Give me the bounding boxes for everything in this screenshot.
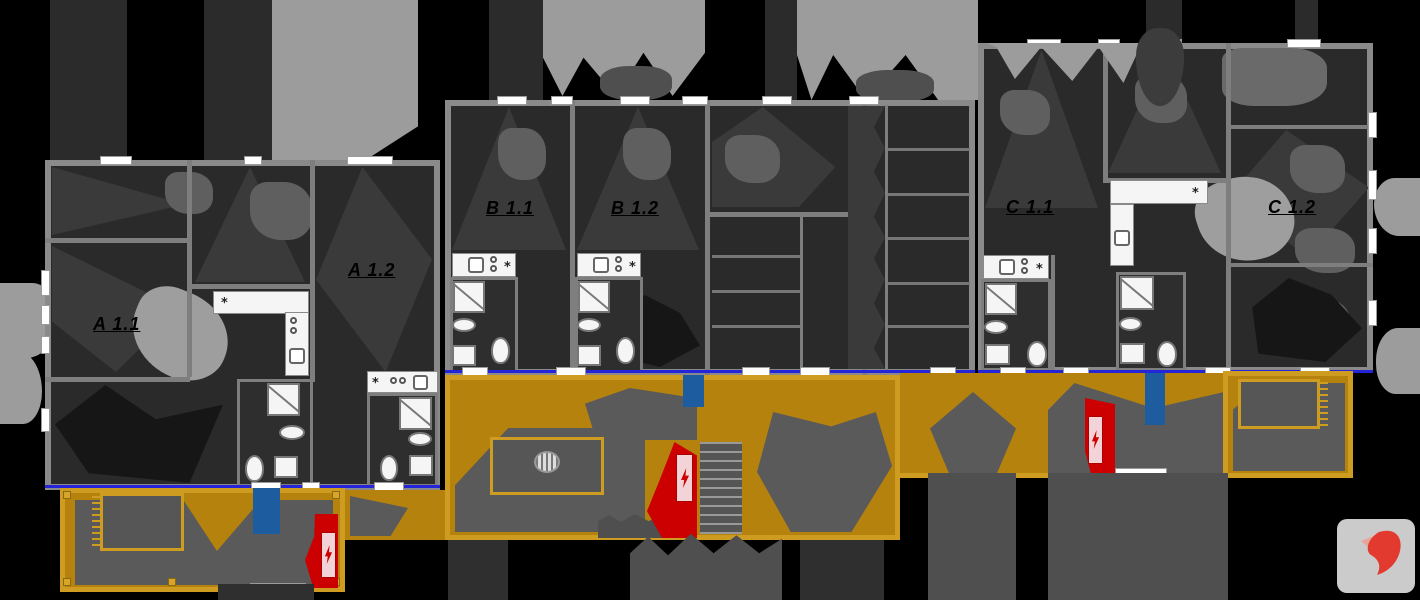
washing-machine-icon [409,455,433,476]
entrance-mat [1145,373,1165,425]
unit-partition [705,100,710,375]
storage-divider [888,282,970,285]
tree-blob [1374,178,1420,236]
stove-icon [399,377,406,384]
window-opening [41,305,50,325]
door-opening [497,96,527,105]
toilet-icon [1027,341,1047,367]
washing-machine-icon [985,344,1010,365]
storage-corridor-shading [848,106,885,369]
shower-icon [399,397,432,430]
logo-mark-icon [1337,519,1415,593]
terrace-post [63,491,71,499]
sink-icon [413,375,428,390]
stove-icon [490,256,497,263]
room-partition [310,160,315,382]
hedge-band [765,0,797,100]
window-opening [1368,300,1377,326]
stove-icon [615,256,622,263]
door-opening [1287,39,1321,48]
stove-icon [615,265,622,272]
vent-star-icon: * [372,379,379,389]
furniture [1222,48,1327,106]
washing-machine-icon [577,345,601,366]
garden-bed [1238,379,1320,429]
washbasin-icon [408,432,432,446]
room-partition [45,238,187,243]
storage-divider [888,325,970,328]
door-opening [849,96,879,105]
storage-divider [888,237,970,240]
stove-icon [1021,258,1028,265]
hedge-band [218,584,314,600]
tree-blob [1376,328,1420,394]
shower-icon [1120,276,1154,310]
unit-label-a12[interactable]: A 1.2 [348,260,395,281]
shower-icon [267,383,300,416]
furniture [1000,90,1050,135]
washing-machine-icon [274,456,298,478]
door-opening [682,96,708,105]
sink-icon [289,348,305,364]
stove-icon [290,327,297,334]
door-opening [620,96,650,105]
toilet-icon [1157,341,1177,367]
window-opening [100,156,132,165]
washbasin-icon [452,318,476,332]
window-opening [41,408,50,432]
hedge-band [204,0,272,162]
storage-corridor-wall [800,217,803,372]
furniture [250,182,312,240]
vent-star-icon: * [1192,189,1199,199]
hedge-band [1295,0,1318,44]
garden-bed-hatch [92,496,100,548]
vent-star-icon: * [629,263,636,273]
company-logo[interactable] [1337,519,1415,593]
window-opening [1368,170,1377,200]
room-partition [45,377,190,382]
room-partition [187,160,192,377]
tree-canopy [272,0,418,162]
kitchen-counter [285,312,309,376]
door-opening [551,96,573,105]
room-partition [1226,263,1373,267]
door-opening [762,96,792,105]
stairs [700,442,742,534]
terrace-post [168,578,176,586]
unit-label-a11[interactable]: A 1.1 [93,314,140,335]
window-opening [347,156,393,165]
stove-icon [490,265,497,272]
shower-icon [578,281,610,313]
terrace-post [63,578,71,586]
floor-plan: * * A 1.1 A 1.2 [0,0,1420,600]
entrance-mat [253,488,280,534]
window-opening [1368,112,1377,138]
room-partition [187,284,315,289]
hedge-band [800,540,884,600]
vent-star-icon: * [504,263,511,273]
window-opening [41,336,50,354]
toilet-icon [616,337,635,364]
storage-divider [888,193,970,196]
toilet-icon [491,337,510,364]
unit-partition [1226,43,1231,373]
stove-icon [1021,267,1028,274]
terrace-post [332,491,340,499]
stove-icon [390,377,397,384]
shower-icon [985,283,1017,315]
entrance-mat [683,375,704,407]
furniture [498,128,546,180]
window-opening [1368,228,1377,254]
window-opening [244,156,262,165]
hedge-band [50,0,127,162]
storage-divider [712,290,800,293]
shrub-mass [1048,473,1228,600]
sink-icon [999,259,1015,275]
unit-label-c11[interactable]: C 1.1 [1006,197,1054,218]
hedge-band [489,0,543,100]
room-partition [1103,43,1108,183]
room-partition [1051,255,1055,373]
furniture [1290,145,1345,193]
washbasin-icon [1119,317,1142,331]
unit-label-b12[interactable]: B 1.2 [611,198,659,219]
sink-icon [1114,230,1130,246]
washbasin-icon [279,425,305,440]
shrub-mass [928,473,1016,600]
garden-bed [100,493,184,551]
sink-icon [468,257,484,273]
tree-icon [600,66,672,100]
washbasin-icon [577,318,601,332]
washbasin-icon [984,320,1008,334]
tree-blob [0,352,42,424]
garden-table-icon [534,451,560,473]
storage-divider [712,325,800,328]
unit-label-b11[interactable]: B 1.1 [486,198,534,219]
sink-icon [593,257,609,273]
stove-icon [290,317,297,324]
facade-line [445,370,975,373]
storage-divider [712,255,800,258]
shower-icon [453,281,485,313]
toilet-icon [380,455,398,481]
room-partition [705,212,862,217]
furniture [623,128,671,180]
vent-star-icon: * [1036,265,1043,275]
window-opening [41,270,50,296]
washing-machine-icon [452,345,476,366]
furniture [725,135,780,183]
washing-machine-icon [1120,343,1145,364]
garden-bed-hatch [1320,382,1328,428]
vent-star-icon: * [221,299,228,309]
unit-label-c12[interactable]: C 1.2 [1268,197,1316,218]
storage-divider [888,148,970,151]
hedge-band [448,540,508,600]
room-partition [1226,125,1373,129]
toilet-icon [245,455,264,482]
